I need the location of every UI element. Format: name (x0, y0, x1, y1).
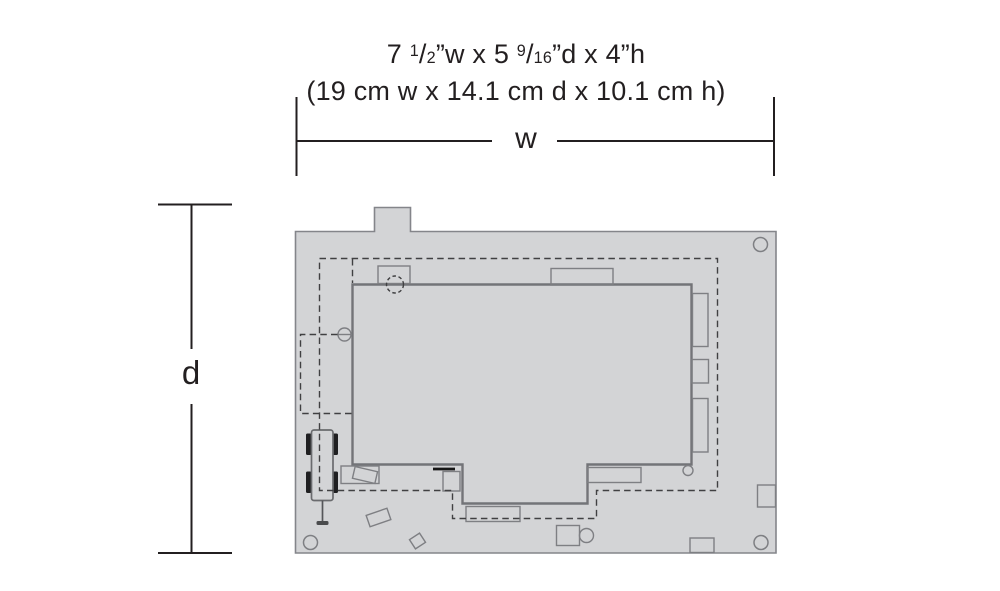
footprint-diagram (0, 0, 1000, 591)
wagon-hitch (317, 521, 329, 525)
footprint-diagram-page: 7 1/2”w x 5 9/16”d x 4”h (19 cm w x 14.1… (0, 0, 1000, 591)
